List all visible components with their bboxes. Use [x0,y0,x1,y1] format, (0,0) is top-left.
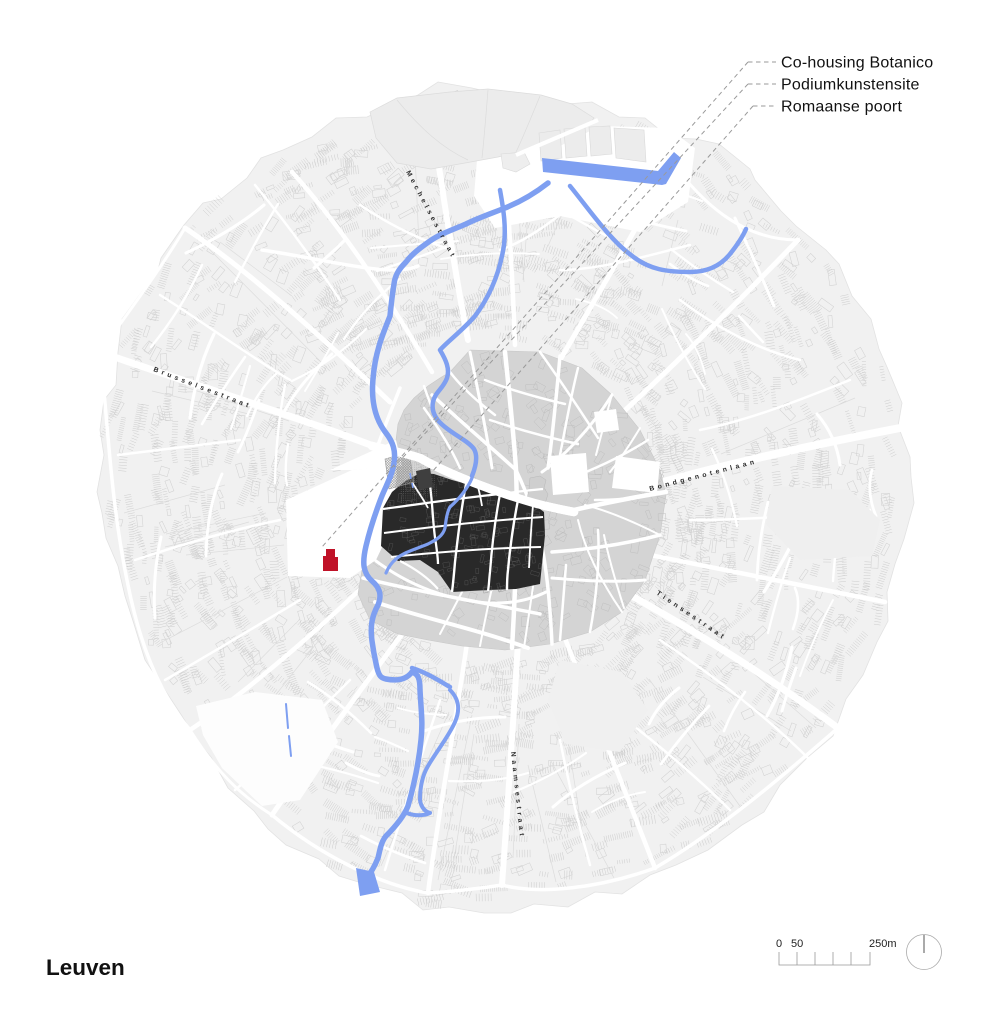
svg-text:50: 50 [791,938,803,950]
svg-text:Romaanse poort: Romaanse poort [781,99,902,116]
svg-text:Co-housing Botanico: Co-housing Botanico [781,55,933,72]
svg-text:Podiumkunstensite: Podiumkunstensite [781,77,920,94]
svg-text:Leuven: Leuven [46,955,125,980]
svg-text:250m: 250m [869,938,897,950]
svg-text:0: 0 [776,938,782,950]
